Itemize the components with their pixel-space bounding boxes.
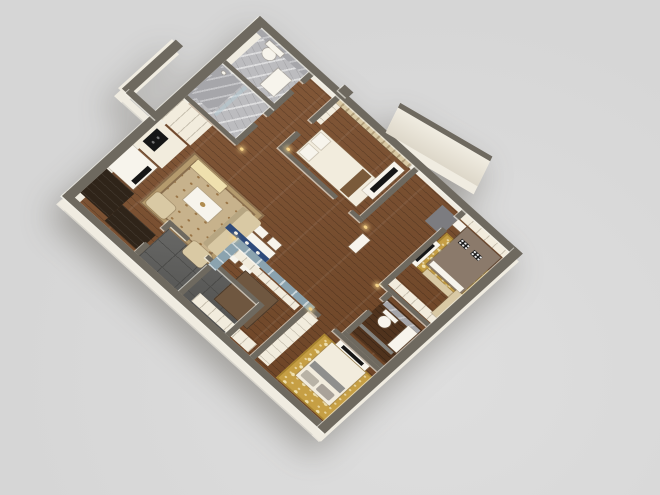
render-scene	[0, 0, 660, 495]
exterior-fin-wall	[122, 40, 183, 96]
floorplan-screenshot: { "scene": { "description": "3D isometri…	[0, 0, 660, 495]
apartment-plan	[62, 16, 523, 434]
exterior-fin-connector	[126, 89, 162, 121]
